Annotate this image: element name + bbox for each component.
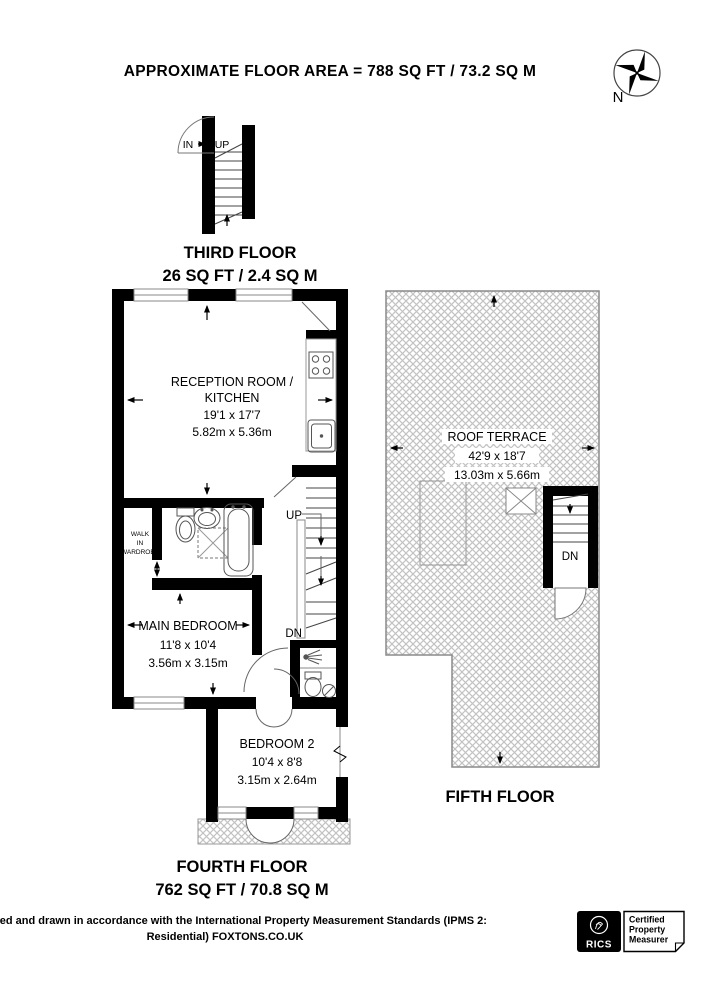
stair-up-label: UP bbox=[215, 139, 230, 151]
third-floor-plan: IN UP THIRD FLOOR 26 SQ FT / 2.4 SQ M bbox=[163, 116, 318, 285]
reception-label-1: RECEPTION ROOM / bbox=[171, 375, 294, 389]
stairs-dn-label: DN bbox=[285, 628, 302, 640]
third-floor-title: THIRD FLOOR bbox=[184, 244, 297, 262]
rics-logo: RICS bbox=[577, 911, 621, 952]
wc-basin-icon bbox=[323, 685, 336, 698]
cert-line-2: Property bbox=[629, 925, 665, 935]
reception-label-2: KITCHEN bbox=[205, 391, 260, 405]
roof-terrace-label: ROOF TERRACE bbox=[447, 430, 546, 444]
footer-line-1: Surveyed and drawn in accordance with th… bbox=[0, 915, 487, 927]
stairs-up-label: UP bbox=[286, 510, 302, 522]
fifth-floor-title: FIFTH FLOOR bbox=[445, 788, 554, 806]
main-bedroom-label: MAIN BEDROOM bbox=[138, 619, 237, 633]
compass-icon: N bbox=[613, 50, 660, 106]
rics-brand-label: RICS bbox=[586, 940, 612, 951]
landing-door-leaf bbox=[274, 477, 296, 497]
staircase-icon bbox=[297, 488, 336, 638]
footer-line-2: Residential) FOXTONS.CO.UK bbox=[147, 931, 304, 943]
stair-in-label: IN bbox=[183, 139, 194, 151]
wardrobe-label-3: WARDROBE bbox=[121, 549, 160, 556]
bedroom2-label: BEDROOM 2 bbox=[239, 737, 314, 751]
certified-property-measurer-badge: Certified Property Measurer bbox=[624, 912, 684, 952]
basin-icon bbox=[194, 508, 220, 529]
floorplan-svg: APPROXIMATE FLOOR AREA = 788 SQ FT / 73.… bbox=[0, 0, 707, 1000]
wardrobe-label-2: IN bbox=[137, 540, 144, 547]
toilet-icon bbox=[176, 508, 195, 542]
bedroom2-dims-imperial: 10'4 x 8'8 bbox=[252, 755, 303, 769]
terrace-stairs-dn-label: DN bbox=[562, 551, 579, 563]
shower-head-icon bbox=[304, 650, 322, 664]
bedroom2-dims-metric: 3.15m x 2.64m bbox=[237, 773, 316, 787]
bedroom2-double-door bbox=[256, 709, 292, 727]
reception-dims-imperial: 19'1 x 17'7 bbox=[203, 408, 261, 422]
fourth-floor-area: 762 SQ FT / 70.8 SQ M bbox=[155, 881, 328, 899]
main-bedroom-dims-metric: 3.56m x 3.15m bbox=[148, 656, 227, 670]
fifth-floor-plan: DN ROOF TERRACE 42'9 x 18'7 13.03m x 5.6… bbox=[386, 291, 599, 806]
roof-terrace-dims-imperial: 42'9 x 18'7 bbox=[468, 449, 526, 463]
floorplan-page: APPROXIMATE FLOOR AREA = 788 SQ FT / 73.… bbox=[0, 0, 707, 1000]
fourth-floor-title: FOURTH FLOOR bbox=[176, 858, 307, 876]
main-bedroom-dims-imperial: 11'8 x 10'4 bbox=[160, 638, 217, 652]
cert-line-3: Measurer bbox=[629, 935, 669, 945]
third-floor-area: 26 SQ FT / 2.4 SQ M bbox=[163, 267, 318, 285]
rooflight-icon bbox=[506, 488, 536, 514]
wc-toilet-icon bbox=[305, 672, 321, 697]
kitchen-door-leaf bbox=[302, 302, 330, 331]
reception-dims-metric: 5.82m x 5.36m bbox=[192, 425, 271, 439]
walls bbox=[202, 116, 255, 234]
wardrobe-label-1: WALK bbox=[131, 531, 150, 538]
fourth-floor-plan: UP DN RECEPTION ROOM / KITCHEN 19'1 x 17… bbox=[112, 289, 350, 899]
stair-handrail bbox=[297, 520, 305, 638]
footer: Surveyed and drawn in accordance with th… bbox=[0, 911, 684, 952]
cert-line-1: Certified bbox=[629, 915, 665, 925]
bathtub-icon bbox=[224, 504, 253, 576]
staircase-icon bbox=[215, 144, 242, 224]
compass-north-label: N bbox=[613, 89, 624, 106]
page-title: APPROXIMATE FLOOR AREA = 788 SQ FT / 73.… bbox=[124, 63, 536, 80]
roof-terrace-dims-metric: 13.03m x 5.66m bbox=[454, 468, 540, 482]
